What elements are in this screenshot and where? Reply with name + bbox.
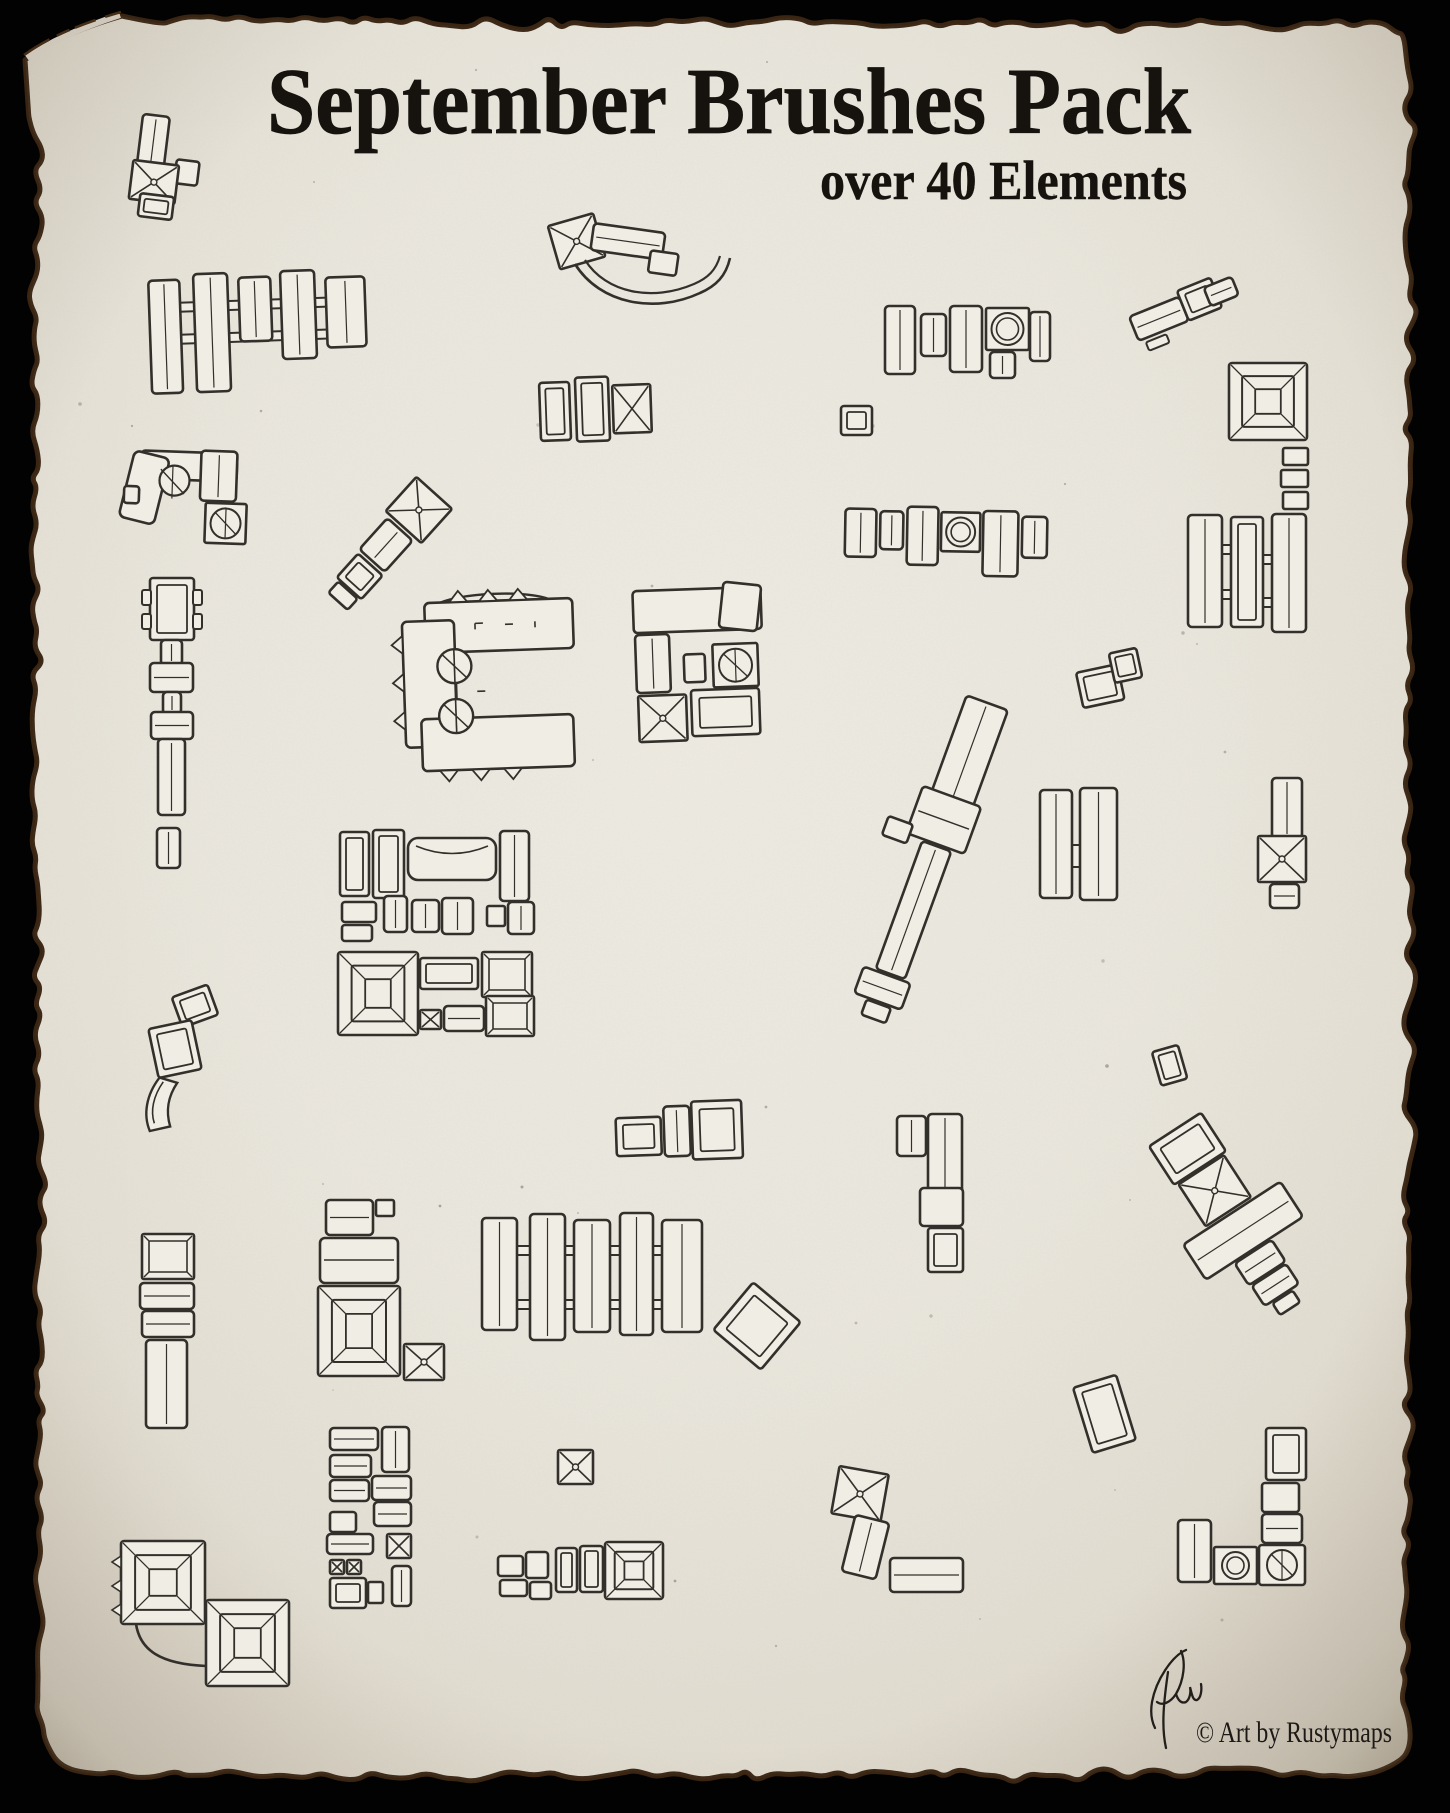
svg-text:© Art by Rustymaps: © Art by Rustymaps [1196, 1717, 1392, 1749]
svg-text:over 40 Elements: over 40 Elements [820, 150, 1187, 211]
svg-text:September Brushes Pack: September Brushes Pack [267, 50, 1192, 154]
